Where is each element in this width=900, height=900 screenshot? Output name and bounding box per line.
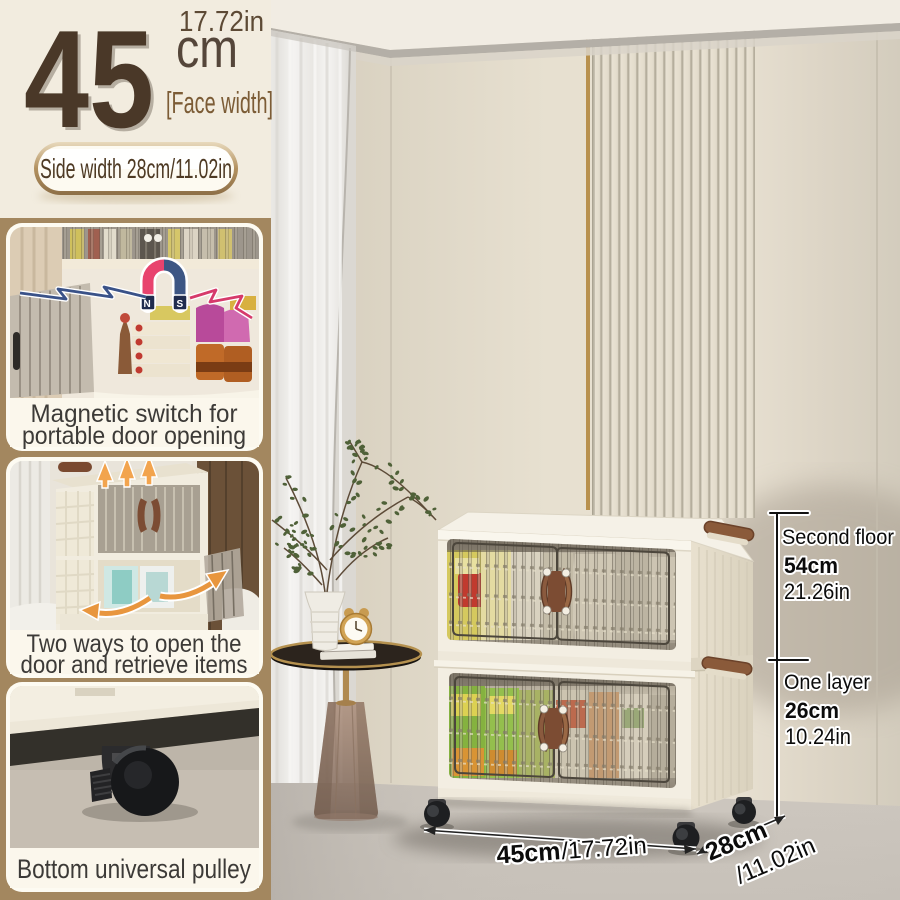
svg-text:Side width 28cm/11.02in: Side width 28cm/11.02in [40, 153, 232, 184]
svg-text:Second floor: Second floor [782, 526, 894, 549]
svg-text:21.26in: 21.26in [784, 579, 850, 604]
svg-text:26cm: 26cm [785, 698, 839, 723]
svg-text:[Face width]: [Face width] [166, 85, 273, 120]
svg-text:One layer: One layer [784, 671, 870, 694]
svg-text:45cm: 45cm [496, 837, 562, 869]
svg-text:N: N [144, 299, 151, 310]
svg-text:cm: cm [176, 17, 238, 79]
svg-text:45: 45 [24, 2, 154, 157]
svg-text:door and retrieve items: door and retrieve items [21, 651, 248, 679]
svg-text:portable door opening: portable door opening [22, 422, 246, 450]
svg-text:10.24in: 10.24in [785, 724, 851, 749]
svg-text:S: S [177, 299, 184, 310]
svg-text:54cm: 54cm [784, 553, 838, 578]
svg-text:Bottom universal pulley: Bottom universal pulley [17, 854, 251, 884]
